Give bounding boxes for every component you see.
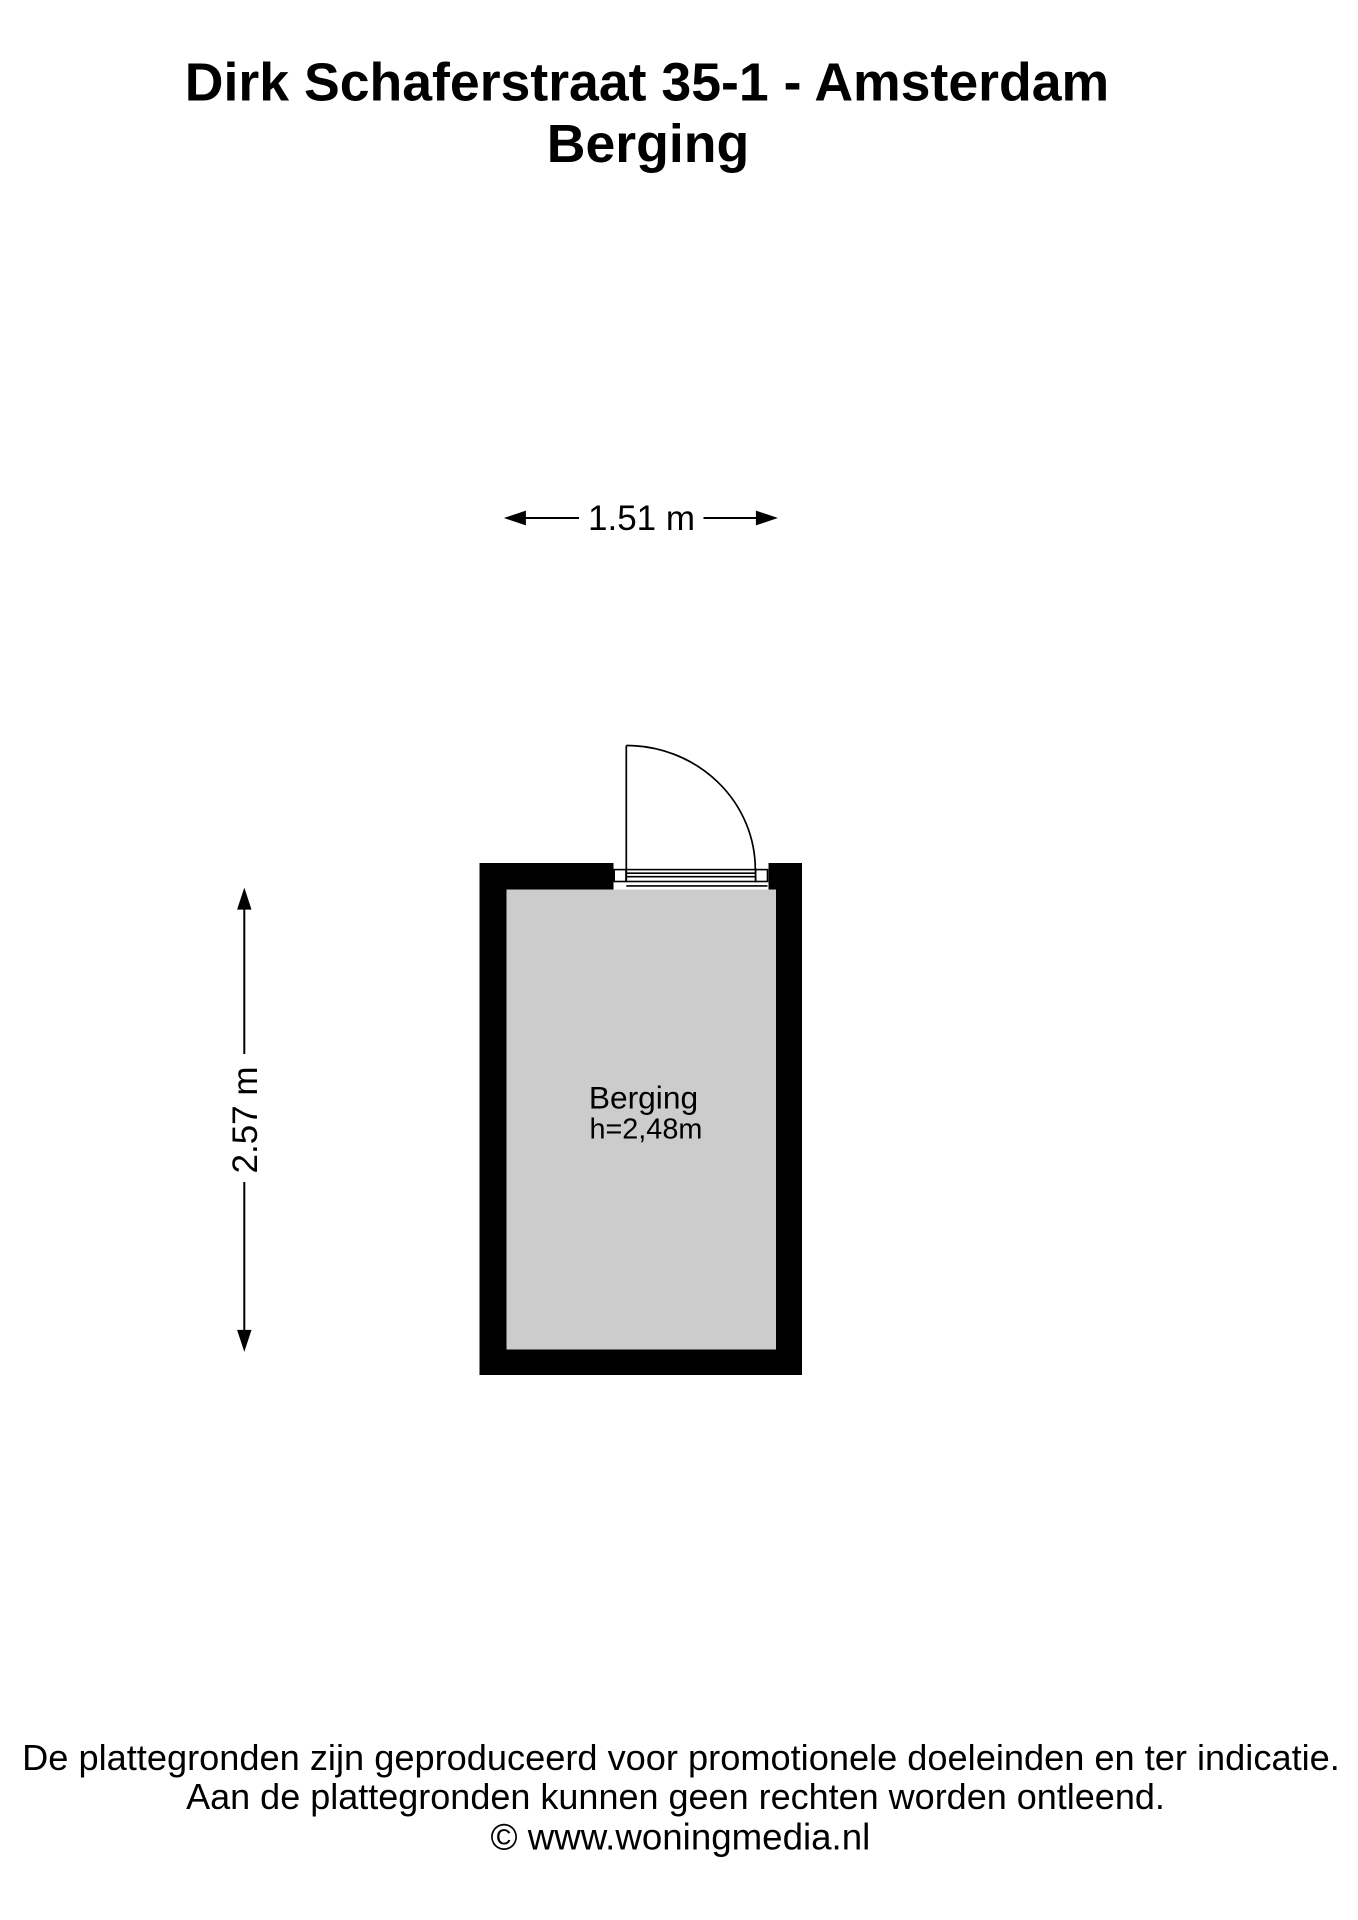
svg-text:© www.woningmedia.nl: © www.woningmedia.nl bbox=[490, 1817, 870, 1858]
svg-text:h=2,48m: h=2,48m bbox=[589, 1114, 702, 1146]
svg-text:Berging: Berging bbox=[547, 114, 749, 174]
svg-text:1.51 m: 1.51 m bbox=[588, 499, 695, 538]
svg-text:Aan de plattegronden kunnen ge: Aan de plattegronden kunnen geen rechten… bbox=[186, 1776, 1165, 1817]
svg-text:Dirk Schaferstraat 35-1 - Amst: Dirk Schaferstraat 35-1 - Amsterdam bbox=[185, 53, 1109, 113]
svg-text:De plattegronden zijn geproduc: De plattegronden zijn geproduceerd voor … bbox=[22, 1737, 1340, 1778]
svg-text:Berging: Berging bbox=[589, 1080, 698, 1116]
svg-text:2.57 m: 2.57 m bbox=[226, 1067, 265, 1174]
